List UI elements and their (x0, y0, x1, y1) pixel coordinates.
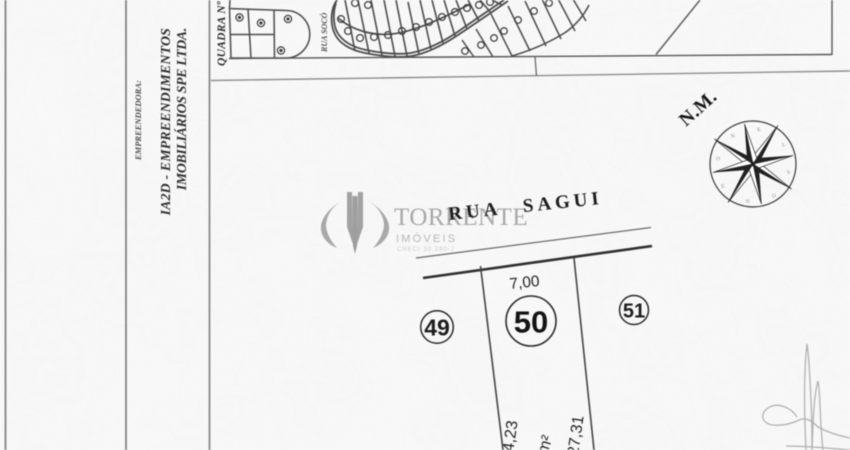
svg-text:51: 51 (623, 301, 645, 323)
svg-text:IMOBILIÁRIOS SPE LTDA.: IMOBILIÁRIOS SPE LTDA. (173, 28, 189, 191)
svg-text:CRECI 30.390-J: CRECI 30.390-J (397, 247, 455, 253)
svg-text:RUA SOCÓ: RUA SOCÓ (319, 12, 329, 53)
svg-text:49: 49 (424, 315, 450, 341)
svg-text:7,00: 7,00 (509, 273, 541, 293)
svg-text:QUADRA Nº 1: QUADRA Nº 1 (216, 0, 228, 66)
svg-text:IMÓVEIS: IMÓVEIS (396, 232, 457, 245)
svg-text:IA2D - EMPREENDIMENTOS: IA2D - EMPREENDIMENTOS (158, 28, 173, 217)
svg-text:50: 50 (514, 305, 548, 340)
svg-text:EMPREENDEDORA:: EMPREENDEDORA: (133, 80, 143, 161)
